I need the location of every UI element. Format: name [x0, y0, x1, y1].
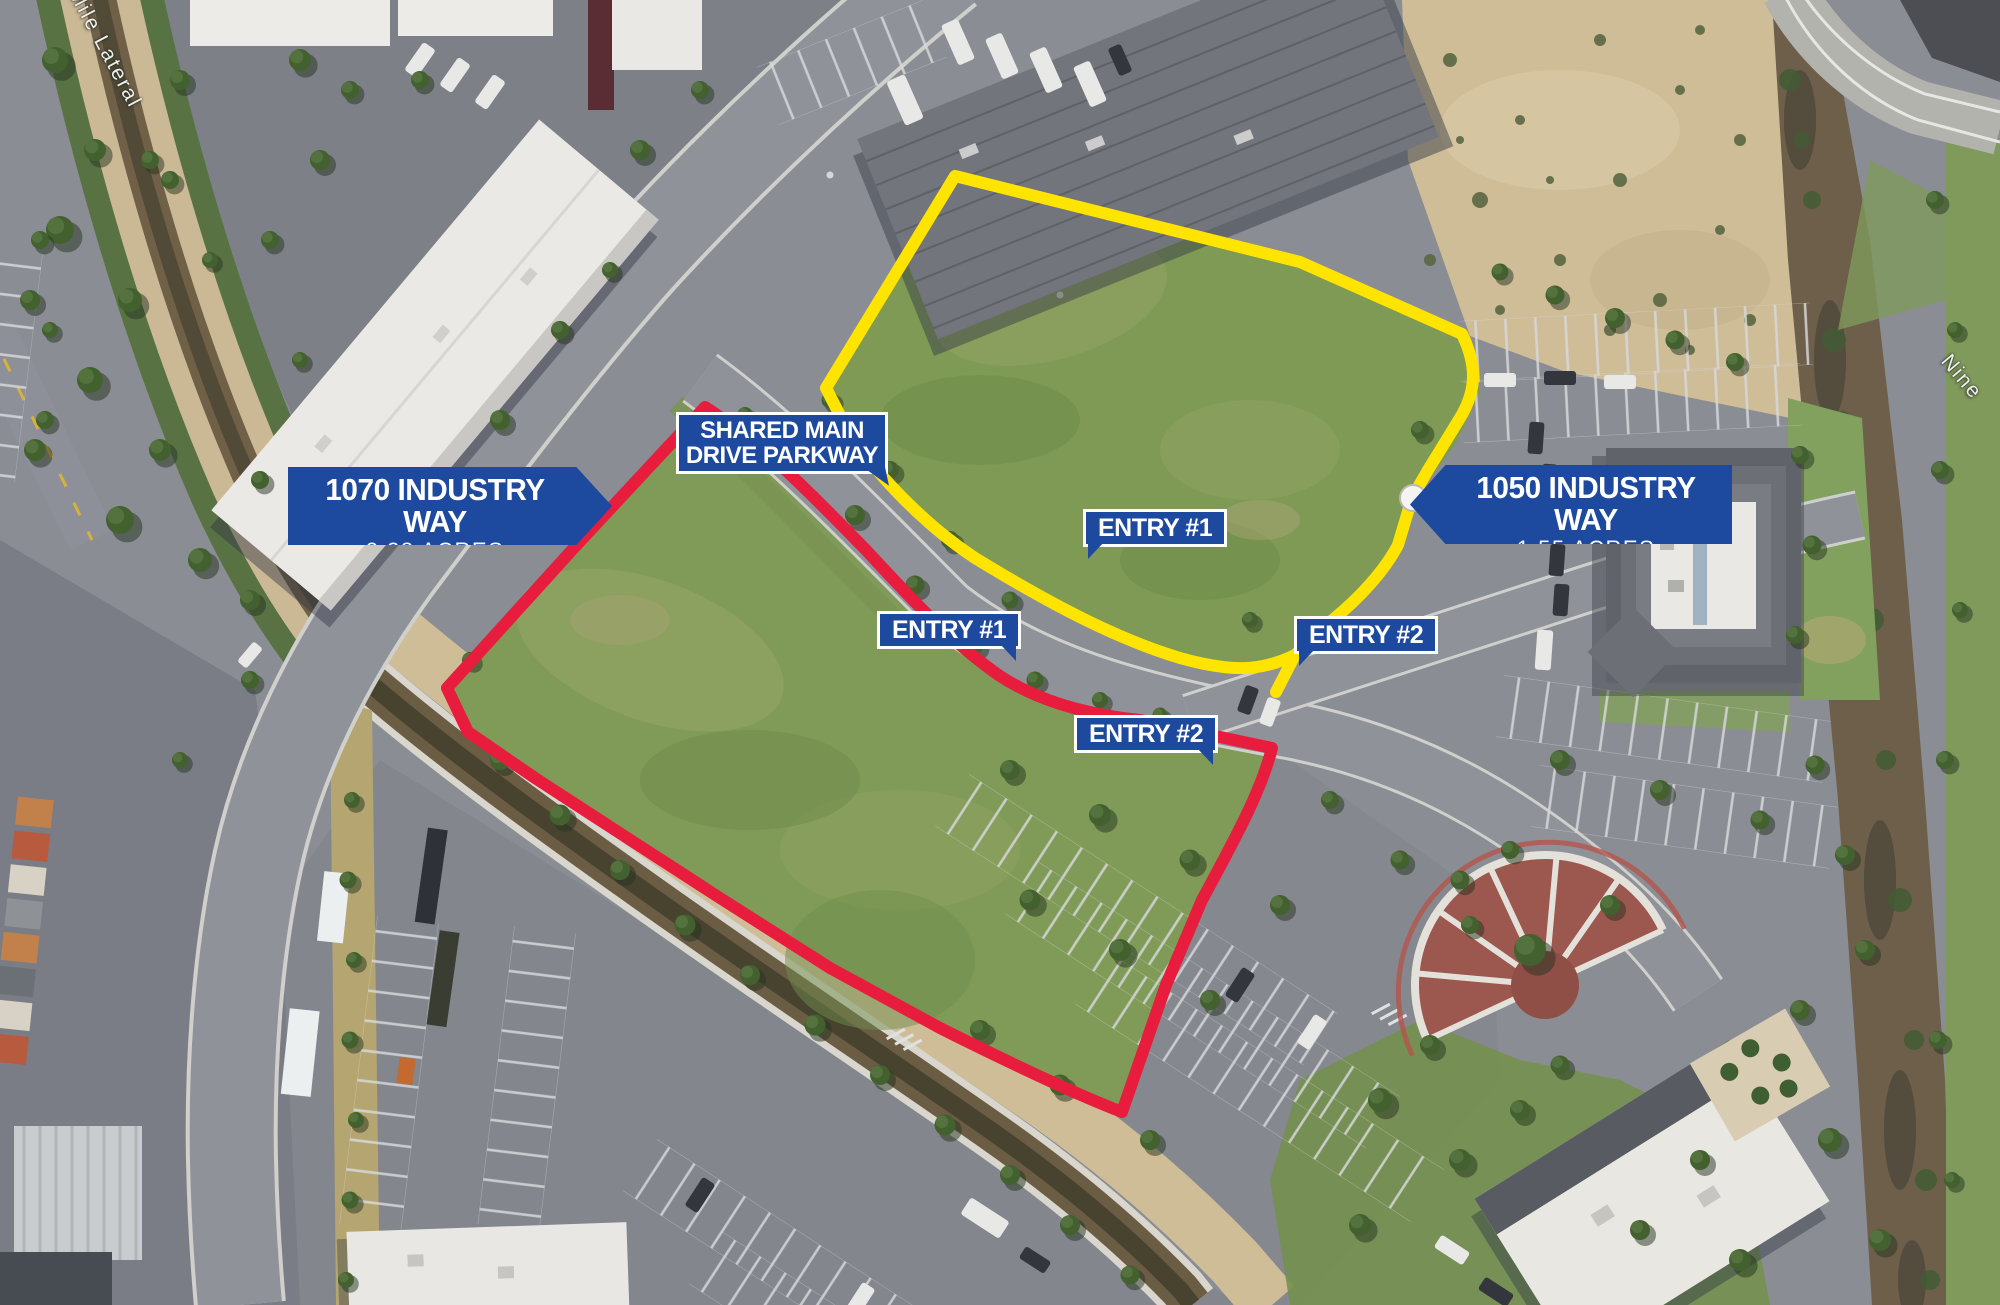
parcel-title: 1070 INDUSTRY WAY — [294, 474, 576, 538]
aerial-site-map: 1070 INDUSTRY WAY 2.38 ACRES 1050 INDUST… — [0, 0, 2000, 1305]
parcel-label-1050: 1050 INDUSTRY WAY 1.55 ACRES — [1410, 465, 1732, 544]
pointer-tail — [1088, 542, 1104, 559]
entry-label: ENTRY #2 — [1309, 621, 1423, 650]
entry-2-callout-south: ENTRY #2 — [1074, 715, 1218, 753]
pointer-tail — [1299, 649, 1315, 666]
entry-label: ENTRY #2 — [1089, 720, 1203, 749]
entry-2-callout-north: ENTRY #2 — [1294, 616, 1438, 654]
pointer-tail — [866, 465, 889, 489]
parcel-label-1070: 1070 INDUSTRY WAY 2.38 ACRES — [288, 467, 612, 545]
entry-label: ENTRY #1 — [1098, 514, 1212, 543]
parcel-title: 1050 INDUSTRY WAY — [1446, 472, 1726, 536]
entry-label: ENTRY #1 — [892, 616, 1006, 645]
shared-drive-callout: SHARED MAIN DRIVE PARKWAY — [676, 412, 888, 474]
entry-1-callout-south: ENTRY #1 — [877, 611, 1021, 649]
shared-drive-line2: DRIVE PARKWAY — [686, 443, 878, 468]
shared-drive-line1: SHARED MAIN — [700, 418, 864, 443]
pointer-tail — [1197, 748, 1213, 765]
pointer-tail — [1000, 644, 1016, 661]
entry-1-callout-north: ENTRY #1 — [1083, 509, 1227, 547]
